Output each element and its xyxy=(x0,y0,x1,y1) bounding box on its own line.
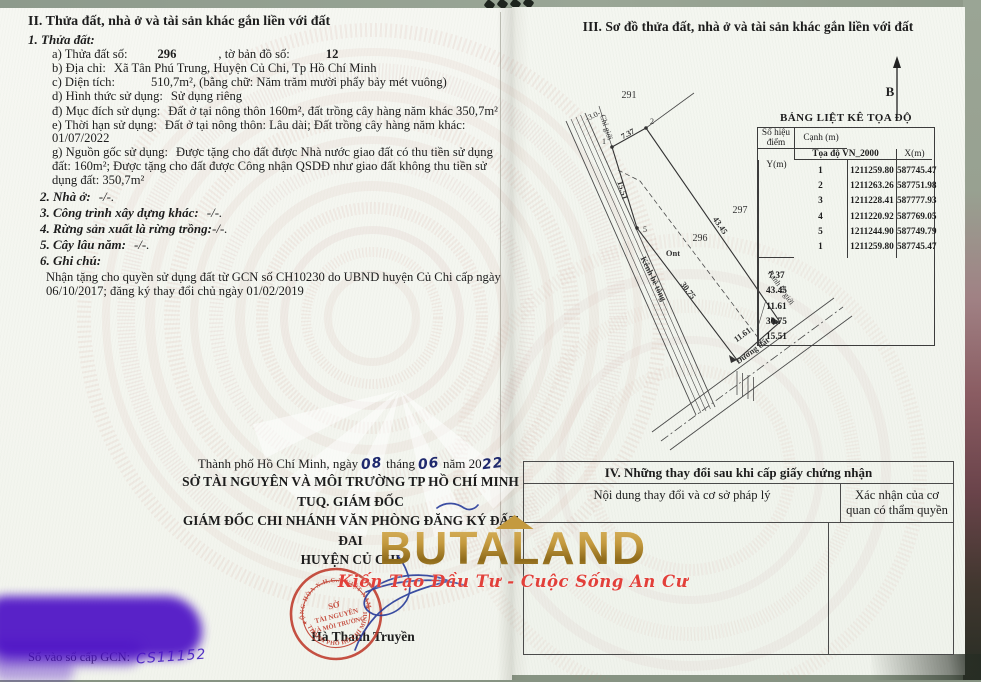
north-arrow-icon xyxy=(893,56,901,68)
scanned-land-certificate: { "colors": { "stamp_red": "#bf3a2b", "i… xyxy=(0,0,981,680)
item-production-forest: 4. Rừng sản xuất là rừng trồng:-/-. xyxy=(40,222,502,236)
area-value: 510,7m² xyxy=(151,75,193,89)
parcel-number-value: 296 xyxy=(158,47,177,61)
coord-col-edges: 7.37 43.45 11.61 30.75 15.51 xyxy=(758,258,794,345)
use-term-date: 01/07/2022 xyxy=(52,132,502,146)
field-origin: g) Nguồn gốc sử dụng:Được tặng cho đất đ… xyxy=(52,146,502,187)
map-edge-11-61: 11.61 xyxy=(732,325,753,344)
map-point-1: 1 xyxy=(602,137,606,146)
coord-col-x: 1211259.80 1211263.26 1211228.41 1211220… xyxy=(847,160,896,258)
col-header-point: Số hiệu điểm xyxy=(758,128,794,149)
item-house: 2. Nhà ở:-/-. xyxy=(40,190,502,204)
house-roof-icon xyxy=(495,515,536,529)
map-label-parcel-297: 297 xyxy=(733,205,748,216)
section-iv-title: IV. Những thay đổi sau khi cấp giấy chứn… xyxy=(524,462,953,484)
issue-date-line: Thành phố Hồ Chí Minh, ngày 08 tháng 06 … xyxy=(178,456,523,472)
map-edge-30-75: 30.75 xyxy=(679,280,698,301)
item-constructions: 3. Công trình xây dựng khác:-/-. xyxy=(40,206,502,220)
map-label-parcel-291: 291 xyxy=(622,90,637,101)
section-iii-title: III. Sơ đồ thửa đất, nhà ở và tài sản kh… xyxy=(538,19,958,35)
map-label-land-use: Ont xyxy=(666,248,680,258)
coord-col-y: 587745.47 587751.98 587777.93 587769.05 … xyxy=(896,160,932,258)
col-header-coord-system: Tọa độ VN_2000 xyxy=(794,149,896,160)
map-edge-15-51: 15.51 xyxy=(615,180,630,201)
field-address: b) Địa chỉ:Xã Tân Phú Trung, Huyện Củ Ch… xyxy=(52,62,502,76)
note-text: Nhận tặng cho quyền sử dụng đất từ GCN s… xyxy=(46,270,502,299)
brand-text: BUTALAND xyxy=(379,524,647,572)
watermark-logo: BUTALAND Kiến Tạo Đầu Tư - Cuộc Sống An … xyxy=(318,524,708,591)
field-use-purpose: đ) Mục đích sử dụng:Đất ở tại nông thôn … xyxy=(52,105,502,119)
map-point-2: 2 xyxy=(650,117,654,126)
stamp-star-left: ★ xyxy=(302,619,309,627)
field-parcel-number: a) Thửa đất số:296, tờ bản đồ số:12 xyxy=(52,48,502,62)
subsection-1-title: 1. Thửa đất: xyxy=(28,33,502,47)
redaction-blob xyxy=(0,660,74,682)
north-label: B xyxy=(886,84,895,99)
field-use-term: e) Thời hạn sử dụng:Đất ở tại nông thôn:… xyxy=(52,119,502,146)
map-label-parcel-296: 296 xyxy=(693,233,708,244)
col-header-edge: Cạnh (m) xyxy=(794,128,847,149)
coord-table-title: BẢNG LIỆT KÊ TỌA ĐỘ xyxy=(757,112,935,124)
item-notes: 6. Ghi chú: xyxy=(40,254,502,268)
item-perennial-trees: 5. Cây lâu năm:-/-. xyxy=(40,238,502,252)
map-edge-7-37: 7.37 xyxy=(620,127,637,142)
field-area: c) Diện tích:510,7m², (bằng chữ: Năm tră… xyxy=(52,76,502,90)
map-sheet-value: 12 xyxy=(326,47,339,61)
brand-tagline: Kiến Tạo Đầu Tư - Cuộc Sống An Cư xyxy=(318,572,708,591)
photo-background-right xyxy=(963,0,981,680)
handwritten-year: 22 xyxy=(481,455,504,473)
col-header-y: Y(m) xyxy=(758,160,794,258)
field-use-form: d) Hình thức sử dụng:Sử dụng riêng xyxy=(52,90,502,104)
coord-col-points: 1 2 3 4 5 1 xyxy=(794,160,847,258)
map-label-boundary: Chỉ giới xyxy=(598,113,615,141)
map-label-canal-width: -3.0- xyxy=(584,108,602,123)
section-ii-title: II. Thửa đất, nhà ở và tài sản khác gắn … xyxy=(28,15,502,29)
confirmation-cell-empty xyxy=(828,523,953,654)
section-ii: II. Thửa đất, nhà ở và tài sản khác gắn … xyxy=(28,15,502,299)
map-point-5: 5 xyxy=(643,225,647,234)
col-header-confirmation: Xác nhận của cơ quan có thẩm quyền xyxy=(840,484,953,522)
coordinate-table: BẢNG LIỆT KÊ TỌA ĐỘ Số hiệu điểm Tọa độ … xyxy=(757,112,935,346)
handwritten-month: 06 xyxy=(417,455,440,473)
col-header-x: X(m) xyxy=(896,149,932,160)
photo-background-corner xyxy=(871,654,981,680)
handwritten-day: 08 xyxy=(361,455,384,473)
